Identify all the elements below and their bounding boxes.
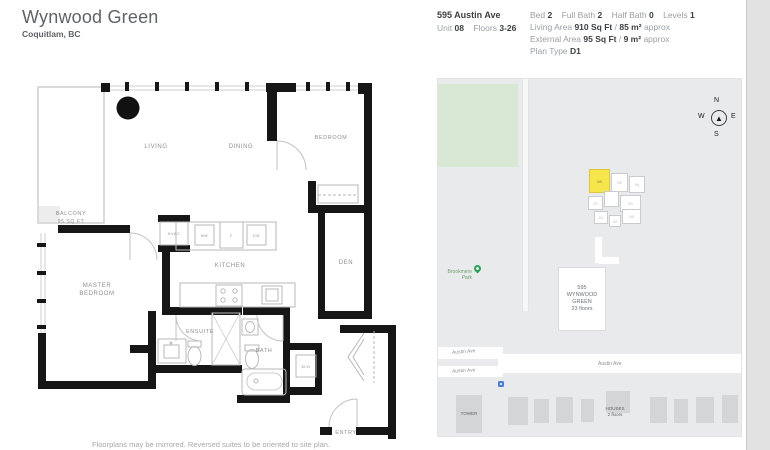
balcony-label: BALCONY bbox=[56, 211, 87, 217]
living-area-row: Living Area 910 Sq Ft / 85 m² approx bbox=[530, 21, 695, 33]
unit-cell-highlighted[interactable]: 08 bbox=[589, 169, 610, 193]
external-area-row: External Area 95 Sq Ft / 9 m² approx bbox=[530, 33, 695, 45]
unit-cell: 04 bbox=[629, 176, 645, 193]
vertical-road bbox=[522, 79, 529, 311]
house-block bbox=[674, 399, 688, 423]
page-edge-strip bbox=[746, 0, 770, 450]
wd-label: W/D bbox=[301, 365, 310, 369]
den-label: DEN bbox=[339, 260, 353, 266]
page-title: Wynwood Green bbox=[22, 7, 159, 28]
plan-type-row: Plan Type D1 bbox=[530, 45, 695, 57]
entry-label: ENTRY bbox=[335, 430, 357, 436]
building-number: 595 bbox=[577, 285, 586, 292]
plan-disclaimer: Floorplans may be mirrored. Reversed sui… bbox=[92, 440, 330, 449]
kitchen-label: KITCHEN bbox=[215, 263, 246, 269]
fixtures bbox=[158, 185, 374, 395]
tower-block: TOWER bbox=[456, 395, 482, 433]
bath-label: BATH bbox=[256, 348, 273, 354]
building-floors: 23 floors bbox=[571, 306, 592, 313]
microwave-label: MW bbox=[201, 234, 209, 238]
bedroom-label: BEDROOM bbox=[315, 135, 348, 141]
compass-n: N bbox=[714, 97, 719, 104]
park-label: Brookmere Park bbox=[438, 269, 472, 281]
unit-cell: 07 bbox=[588, 196, 603, 210]
building-name-1: WYNWOOD bbox=[567, 292, 598, 299]
floorplan-drawing: BALCONY 95 SQ FT LIVING DINING BEDROOM D… bbox=[30, 75, 402, 440]
balcony-area-label: 95 SQ FT bbox=[58, 219, 84, 225]
building-info-box: 595 WYNWOOD GREEN 23 floors bbox=[558, 267, 606, 331]
master-label-1: MASTER bbox=[83, 283, 112, 289]
driveway-turn bbox=[595, 257, 619, 264]
street-label-austin-lower: Austin Ave bbox=[452, 367, 476, 374]
unit-floors-line: Unit 08 Floors 3-26 bbox=[437, 22, 516, 35]
house-block bbox=[650, 397, 667, 423]
house-block bbox=[556, 397, 573, 423]
map-pin-icon bbox=[473, 264, 483, 274]
balcony-outline bbox=[38, 87, 104, 223]
hvac-label: HVAC bbox=[168, 232, 181, 236]
dishwasher-label: DW bbox=[253, 234, 260, 238]
compass: N W E S ▲ bbox=[696, 97, 740, 145]
unit-address: 595 Austin Ave bbox=[437, 9, 516, 22]
site-map[interactable]: N W E S ▲ 08 05 04 07 03 01 02 06 595 WY… bbox=[437, 78, 742, 437]
structural-column bbox=[117, 97, 140, 120]
park-area bbox=[438, 84, 518, 167]
master-label-2: BEDROOM bbox=[79, 291, 114, 297]
specs-row: Bed 2 Full Bath 2 Half Bath 0 Levels 1 bbox=[530, 9, 695, 21]
dining-label: DINING bbox=[229, 144, 254, 150]
page-location: Coquitlam, BC bbox=[22, 29, 81, 39]
unit-cell: 01 bbox=[594, 211, 608, 224]
building-name-2: GREEN bbox=[572, 299, 592, 306]
ensuite-label: ENSUITE bbox=[186, 329, 214, 335]
house-block bbox=[696, 397, 714, 423]
tower-label: TOWER bbox=[461, 411, 478, 417]
living-label: LIVING bbox=[144, 144, 167, 150]
fridge-label: F bbox=[230, 234, 233, 238]
houses-label: HOUSES 2 floors bbox=[590, 406, 640, 418]
house-block bbox=[534, 399, 549, 423]
transit-stop-icon bbox=[498, 381, 504, 387]
unit-specs-block: Bed 2 Full Bath 2 Half Bath 0 Levels 1 L… bbox=[530, 9, 695, 57]
compass-needle-icon: ▲ bbox=[711, 110, 727, 126]
unit-cell-core bbox=[604, 191, 619, 207]
compass-e: E bbox=[731, 113, 736, 120]
unit-cell: 02 bbox=[609, 215, 621, 227]
unit-address-block: 595 Austin Ave Unit 08 Floors 3-26 bbox=[437, 9, 516, 35]
unit-cell: 06 bbox=[622, 209, 641, 224]
house-block bbox=[722, 395, 738, 423]
compass-w: W bbox=[698, 113, 705, 120]
house-block bbox=[508, 397, 528, 425]
unit-cell: 05 bbox=[611, 173, 628, 192]
street-label-austin-main: Austin Ave bbox=[598, 361, 622, 367]
compass-s: S bbox=[714, 131, 719, 138]
